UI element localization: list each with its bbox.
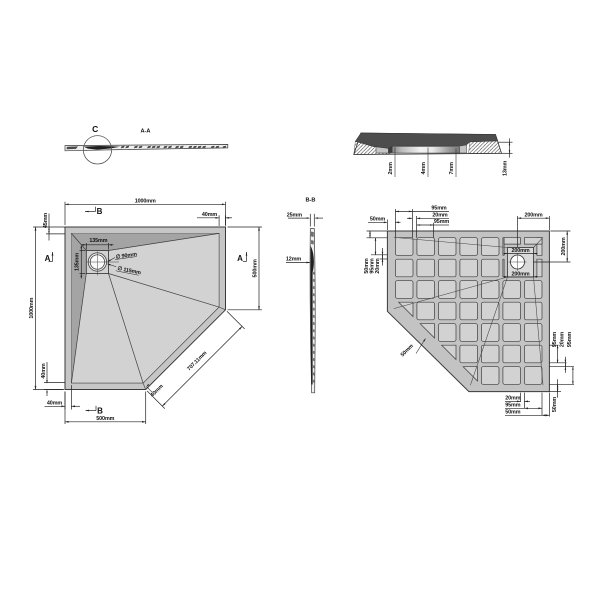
svg-text:20mm: 20mm xyxy=(375,258,381,273)
svg-text:95mm: 95mm xyxy=(434,219,449,225)
svg-text:20mm: 20mm xyxy=(560,332,566,347)
svg-text:95mm: 95mm xyxy=(552,332,558,347)
svg-text:B: B xyxy=(97,207,103,216)
svg-text:95mm: 95mm xyxy=(505,403,520,409)
svg-text:40mm: 40mm xyxy=(41,363,47,378)
svg-text:135mm: 135mm xyxy=(89,238,107,244)
svg-text:200mm: 200mm xyxy=(511,248,529,254)
svg-text:50mm: 50mm xyxy=(505,410,520,416)
svg-text:500mm: 500mm xyxy=(253,259,259,277)
svg-text:B: B xyxy=(97,406,103,415)
svg-text:1000mm: 1000mm xyxy=(29,297,35,318)
svg-text:25mm: 25mm xyxy=(287,212,302,218)
svg-text:13mm: 13mm xyxy=(502,161,508,176)
svg-text:50mm: 50mm xyxy=(552,397,558,412)
svg-text:40mm: 40mm xyxy=(47,400,62,406)
svg-text:A: A xyxy=(237,254,243,263)
svg-text:95mm: 95mm xyxy=(567,332,573,347)
svg-text:1000mm: 1000mm xyxy=(135,199,156,205)
svg-text:A-A: A-A xyxy=(141,128,151,134)
svg-text:500mm: 500mm xyxy=(96,416,114,422)
svg-text:20mm: 20mm xyxy=(505,396,520,402)
svg-text:20mm: 20mm xyxy=(432,213,447,219)
svg-text:135mm: 135mm xyxy=(75,253,81,271)
svg-text:200mm: 200mm xyxy=(524,213,542,219)
svg-text:40mm: 40mm xyxy=(202,212,217,218)
svg-text:7mm: 7mm xyxy=(449,162,455,175)
svg-text:B-B: B-B xyxy=(306,198,316,204)
svg-text:200mm: 200mm xyxy=(561,237,567,255)
svg-text:4mm: 4mm xyxy=(421,162,427,175)
svg-text:2mm: 2mm xyxy=(388,162,394,175)
svg-text:C: C xyxy=(92,124,98,134)
svg-text:95mm: 95mm xyxy=(431,206,446,212)
svg-text:45mm: 45mm xyxy=(43,213,49,228)
svg-text:50mm: 50mm xyxy=(370,216,385,222)
svg-text:12mm: 12mm xyxy=(286,257,301,263)
